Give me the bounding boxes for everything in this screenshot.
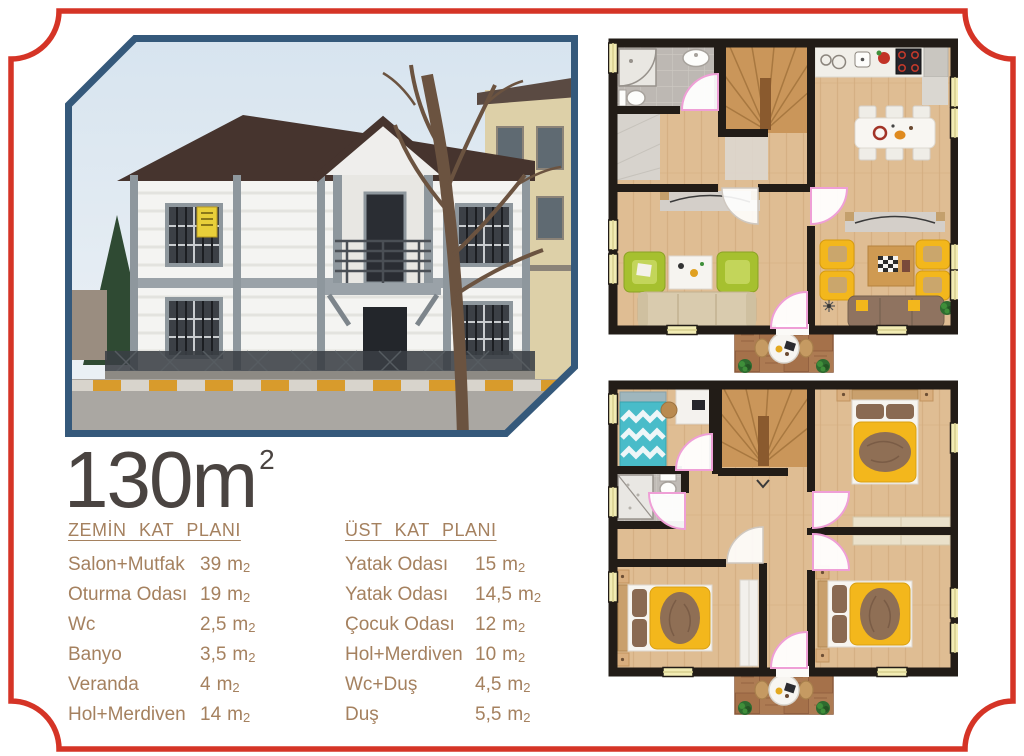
room-label: Wc [68,610,200,640]
stove [896,49,921,74]
coffee-table-salon [868,246,914,286]
desk-chair [661,402,677,418]
room-area: 3,5m2 [200,640,255,670]
hall-closet [617,114,660,180]
room-area: 14m2 [200,700,250,730]
sofa-sitting-room [638,292,756,327]
table-row: Wc+Duş4,5m2 [345,670,541,700]
table-row: Yatak Odası14,5m2 [345,580,541,610]
table-row: Oturma Odası19m2 [68,580,255,610]
upper-floor-table: ÜST KAT PLANI Yatak Odası15m2 Yatak Odas… [345,520,541,730]
tv-unit-salon [845,212,945,232]
ground-floor-plan [608,38,958,375]
sofa-salon [848,296,944,328]
room-area: 39m2 [200,550,250,580]
area-unit: m [191,435,256,524]
room-label: Çocuk Odası [345,610,475,640]
table-row: Hol+Merdiven10m2 [345,640,541,670]
brochure-page: 130m2 ZEMİN KAT PLANI Salon+Mutfak39m2 O… [0,0,1024,756]
table-row: Çocuk Odası12m2 [345,610,541,640]
table-row: Salon+Mutfak39m2 [68,550,255,580]
room-label: Hol+Merdiven [345,640,475,670]
house-photo-illustration [65,35,578,437]
room-label: Banyo [68,640,200,670]
house-photo [65,35,578,437]
room-area: 14,5m2 [475,580,541,610]
room-label: Oturma Odası [68,580,200,610]
room-area: 12m2 [475,610,525,640]
ground-floor-title: ZEMİN KAT PLANI [68,520,255,541]
kitchen-counter [815,47,948,77]
child-bed [620,392,666,468]
balcony [735,672,833,715]
room-area: 4m2 [200,670,240,700]
staircase [718,389,808,467]
coffee-table-sitting-room [669,256,712,289]
room-label: Hol+Merdiven [68,700,200,730]
room-area: 4,5m2 [475,670,530,700]
room-label: Duş [345,700,475,730]
area-exponent: 2 [259,444,275,475]
room-label: Yatak Odası [345,580,475,610]
area-number: 130 [64,435,191,524]
fence-and-street [65,351,578,437]
dining-table [855,106,935,160]
upper-floor-plan [608,380,958,715]
room-area: 19m2 [200,580,250,610]
room-label: Salon+Mutfak [68,550,200,580]
table-row: Wc2,5m2 [68,610,255,640]
curb [65,380,578,391]
room-area: 2,5m2 [200,610,255,640]
table-row: Yatak Odası15m2 [345,550,541,580]
room-label: Yatak Odası [345,550,475,580]
area-headline: 130m2 [64,440,275,520]
room-area: 5,5m2 [475,700,530,730]
veranda [735,330,833,373]
sale-sign [197,207,217,237]
room-label: Veranda [68,670,200,700]
room-label: Wc+Duş [345,670,475,700]
ground-floor-table: ZEMİN KAT PLANI Salon+Mutfak39m2 Oturma … [68,520,255,730]
table-row: Veranda4m2 [68,670,255,700]
upper-floor-title: ÜST KAT PLANI [345,520,541,541]
room-area: 10m2 [475,640,525,670]
room-area: 15m2 [475,550,525,580]
wardrobe-white [740,580,758,666]
table-row: Banyo3,5m2 [68,640,255,670]
kitchen-cabinet [922,77,948,105]
table-row: Hol+Merdiven14m2 [68,700,255,730]
main-house [117,115,535,370]
table-row: Duş5,5m2 [345,700,541,730]
